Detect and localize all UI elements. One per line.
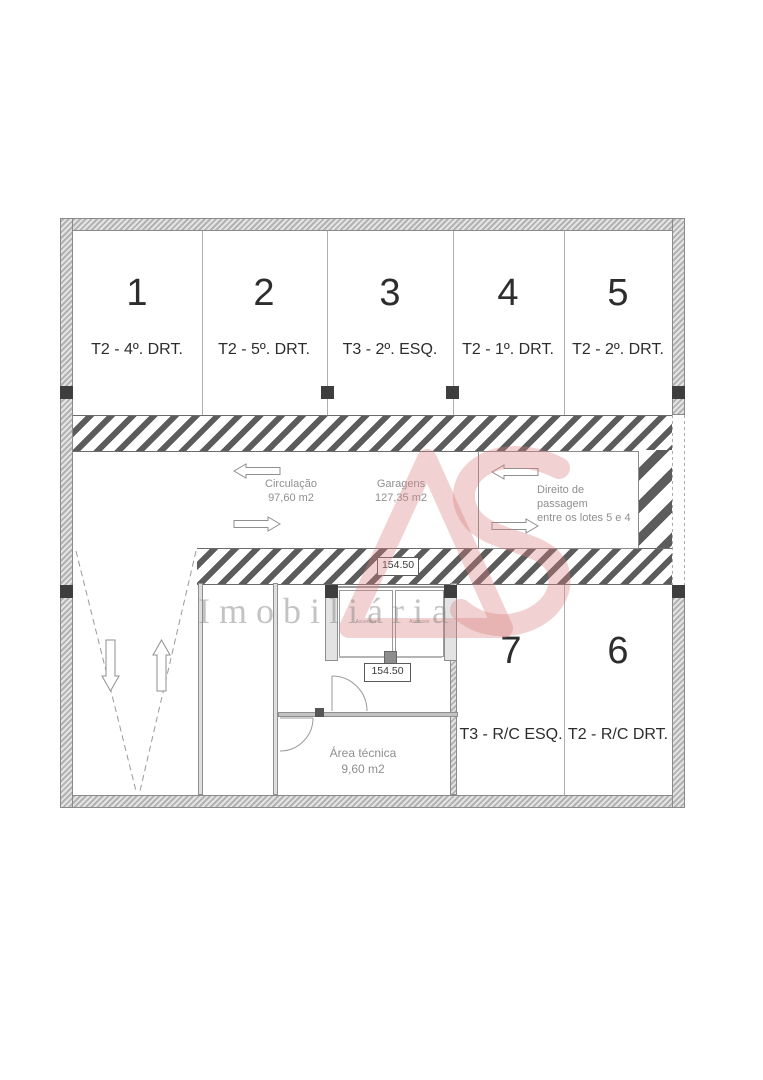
parking-space-7-number: 7 bbox=[451, 630, 571, 673]
passage-line2: entre os lotes 5 e 4 bbox=[537, 511, 635, 525]
pillar bbox=[60, 585, 73, 598]
outer-wall-left bbox=[60, 218, 73, 808]
parking-divider-1-2 bbox=[202, 231, 203, 415]
parking-space-6-label: T2 - R/C DRT. bbox=[558, 726, 678, 744]
circulation-area: 97,60 m2 bbox=[238, 491, 344, 505]
hatch-band-bottom bbox=[197, 548, 672, 585]
garages-area: 127,35 m2 bbox=[348, 491, 454, 505]
parking-space-1-number: 1 bbox=[77, 272, 197, 315]
arrow-left-icon bbox=[491, 464, 539, 480]
pillar bbox=[446, 386, 459, 399]
parking-space-4-number: 4 bbox=[448, 272, 568, 315]
elevator-top-line bbox=[338, 586, 444, 588]
parking-space-2-number: 2 bbox=[204, 272, 324, 315]
level-marker-upper: 154.50 bbox=[377, 557, 419, 576]
passage-right-of-way-box: Direito de passagem entre os lotes 5 e 4 bbox=[478, 451, 639, 549]
wall-technical-top bbox=[278, 712, 458, 717]
ramp-dashed-lines bbox=[76, 551, 196, 791]
pillar bbox=[672, 386, 685, 399]
arrow-down-icon bbox=[102, 640, 119, 691]
circulation-name: Circulação bbox=[238, 477, 344, 491]
pillar bbox=[321, 386, 334, 399]
parking-space-3-label: T3 - 2º. ESQ. bbox=[330, 341, 450, 359]
pillar bbox=[60, 386, 73, 399]
hatch-passage-right bbox=[637, 450, 672, 548]
passage-line1: Direito de passagem bbox=[537, 483, 635, 511]
hatch-band-top bbox=[73, 415, 672, 452]
parking-space-3-number: 3 bbox=[330, 272, 450, 315]
outer-wall-right-lower bbox=[672, 585, 685, 808]
parking-space-5-number: 5 bbox=[558, 272, 678, 315]
parking-divider-4-5 bbox=[564, 231, 565, 415]
technical-room-label: Área técnica 9,60 m2 bbox=[303, 745, 423, 777]
circulation-label: Circulação 97,60 m2 bbox=[238, 477, 344, 505]
door-stop bbox=[315, 708, 324, 717]
outer-wall-top bbox=[60, 218, 685, 231]
outer-wall-bottom bbox=[60, 795, 685, 808]
floor-plan-canvas: 1 T2 - 4º. DRT. 2 T2 - 5º. DRT. 3 T3 - 2… bbox=[0, 0, 763, 1080]
arrow-right-icon bbox=[233, 516, 281, 532]
parking-space-4-label: T2 - 1º. DRT. bbox=[448, 341, 568, 359]
technical-room-area: 9,60 m2 bbox=[303, 761, 423, 777]
arrow-left-icon bbox=[233, 463, 281, 479]
garages-label: Garagens 127,35 m2 bbox=[348, 477, 454, 505]
parking-space-1-label: T2 - 4º. DRT. bbox=[77, 341, 197, 359]
pillar bbox=[672, 585, 685, 598]
parking-space-6-number: 6 bbox=[558, 630, 678, 673]
parking-divider-7-6 bbox=[564, 585, 565, 795]
watermark-text: Imobiliária bbox=[198, 590, 538, 632]
arrow-right-icon bbox=[491, 518, 539, 534]
garages-name: Garagens bbox=[348, 477, 454, 491]
passage-label: Direito de passagem entre os lotes 5 e 4 bbox=[537, 483, 635, 525]
level-marker-lower: 154.50 bbox=[364, 663, 411, 682]
parking-space-7-label: T3 - R/C ESQ. bbox=[451, 726, 571, 744]
parking-space-5-label: T2 - 2º. DRT. bbox=[558, 341, 678, 359]
lot-boundary-dashes bbox=[673, 415, 685, 585]
technical-room-name: Área técnica bbox=[303, 745, 423, 761]
arrow-up-icon bbox=[153, 640, 170, 691]
door-swing-landing bbox=[332, 676, 367, 711]
parking-space-2-label: T2 - 5º. DRT. bbox=[204, 341, 324, 359]
